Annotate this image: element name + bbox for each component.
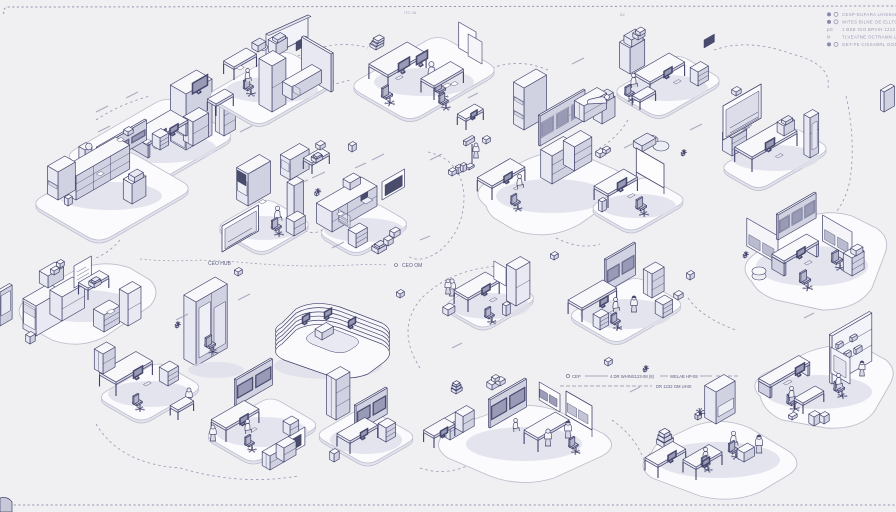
svg-text:CEO HUB: CEO HUB: [208, 261, 231, 267]
svg-text:WITES BILNE OE ELLTOFRE: WITES BILNE OE ELLTOFRE: [842, 20, 896, 25]
svg-text:TLVEATNE OCTRAMN LLHUT: TLVEATNE OCTRAMN LLHUT: [842, 35, 896, 40]
svg-text:CESP-EUFARA LHISSAE-COS: CESP-EUFARA LHISSAE-COS: [842, 12, 896, 17]
svg-text:DR 1232 OM UHIX: DR 1232 OM UHIX: [656, 384, 692, 389]
svg-text:GET-PE CISSABRL OO122: GET-PE CISSABRL OO122: [842, 42, 896, 47]
svg-text:4 DR WHINS123-08 (8): 4 DR WHINS123-08 (8): [610, 374, 655, 379]
svg-text:CEO OM: CEO OM: [402, 263, 422, 269]
svg-text:B2: B2: [620, 12, 626, 17]
svg-text:l#: l#: [827, 35, 831, 40]
svg-text:pG: pG: [827, 27, 833, 32]
svg-text:ITC 08: ITC 08: [404, 10, 417, 15]
svg-text:CEP: CEP: [572, 374, 581, 379]
svg-text:1 BSE GIO BRVIH 1212 OVI: 1 BSE GIO BRVIH 1212 OVI: [842, 27, 896, 32]
svg-text:WELAB HP-08: WELAB HP-08: [670, 374, 698, 379]
